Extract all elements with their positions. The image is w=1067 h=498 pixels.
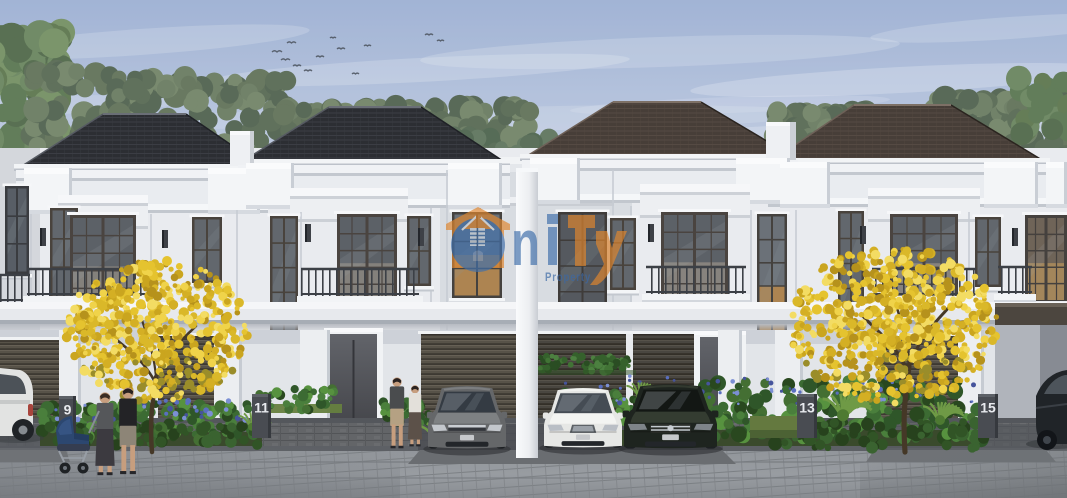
svg-text:15: 15 bbox=[980, 399, 996, 415]
svg-text:Property: Property bbox=[545, 270, 591, 284]
svg-text:11: 11 bbox=[254, 399, 269, 415]
svg-text:9: 9 bbox=[64, 401, 72, 417]
svg-text:n: n bbox=[511, 207, 540, 279]
svg-text:13: 13 bbox=[799, 399, 815, 415]
